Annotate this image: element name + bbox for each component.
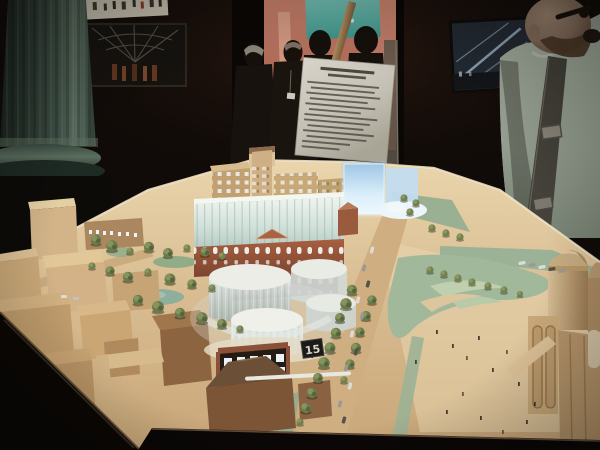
photograph-museum-model-exhibit: 15 (0, 0, 600, 450)
vignette-overlay (0, 0, 600, 450)
photo-canvas: 15 (0, 0, 600, 450)
